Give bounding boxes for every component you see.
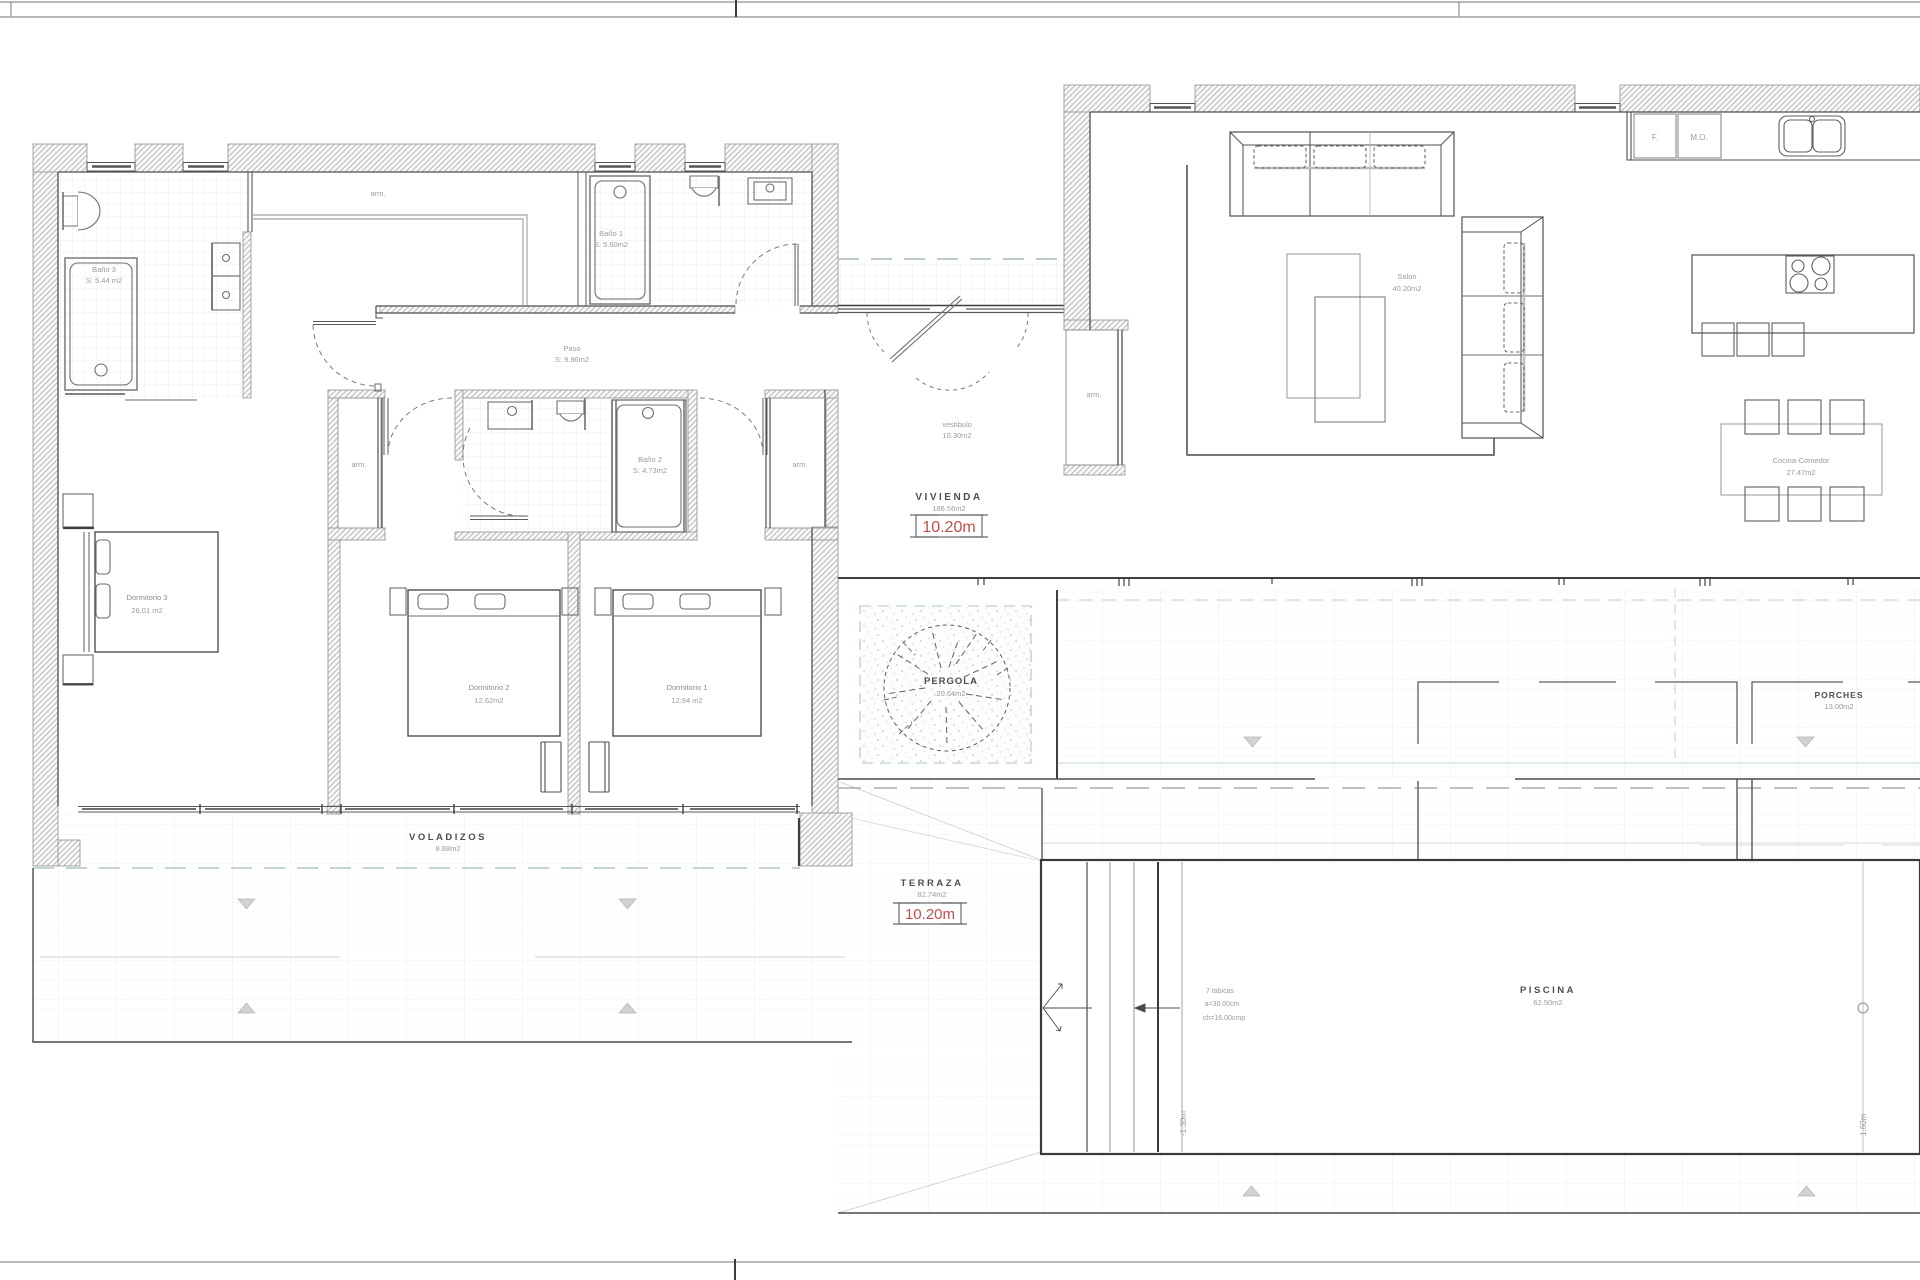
svg-text:Salon: Salon <box>1397 272 1416 281</box>
svg-text:27.47m2: 27.47m2 <box>1786 468 1815 477</box>
svg-text:7 tabicas: 7 tabicas <box>1206 988 1235 995</box>
svg-text:S: 5.44 m2: S: 5.44 m2 <box>86 276 122 285</box>
svg-text:arm.: arm. <box>371 189 386 198</box>
svg-text:M.O.: M.O. <box>1690 133 1707 142</box>
svg-text:Dormitorio 1: Dormitorio 1 <box>667 683 708 692</box>
svg-text:Baño 3: Baño 3 <box>92 265 116 274</box>
svg-text:40.20m2: 40.20m2 <box>1392 284 1421 293</box>
svg-text:8.88m2: 8.88m2 <box>435 844 460 853</box>
svg-text:20.64m2: 20.64m2 <box>936 689 965 698</box>
svg-text:PERGOLA: PERGOLA <box>924 676 978 687</box>
svg-text:Baño 1: Baño 1 <box>599 229 623 238</box>
svg-text:S: 4.73m2: S: 4.73m2 <box>633 466 667 475</box>
svg-text:VOLADIZOS: VOLADIZOS <box>409 832 487 843</box>
svg-text:12.62m2: 12.62m2 <box>474 696 503 705</box>
svg-text:62.50m2: 62.50m2 <box>1533 998 1562 1007</box>
svg-text:26.01 m2: 26.01 m2 <box>131 606 162 615</box>
svg-text:S: 9.96m2: S: 9.96m2 <box>555 355 589 364</box>
svg-text:10.20m: 10.20m <box>922 519 975 536</box>
svg-text:Cocina-Comedor: Cocina-Comedor <box>1773 456 1830 465</box>
svg-text:F.: F. <box>1652 133 1658 142</box>
svg-text:Paso: Paso <box>563 344 580 353</box>
svg-text:12.94 m2: 12.94 m2 <box>671 696 702 705</box>
svg-text:1.60m: 1.60m <box>1859 1113 1868 1136</box>
svg-text:-1.30m: -1.30m <box>1179 1111 1188 1136</box>
svg-text:Dormitorio 3: Dormitorio 3 <box>127 593 168 602</box>
svg-text:a=30.00cm: a=30.00cm <box>1205 1001 1240 1008</box>
svg-text:PORCHES: PORCHES <box>1814 690 1863 700</box>
svg-text:arm.: arm. <box>352 460 367 469</box>
svg-text:TERRAZA: TERRAZA <box>901 878 964 889</box>
svg-text:vestibulo: vestibulo <box>942 420 972 429</box>
svg-text:Dormitorio 2: Dormitorio 2 <box>469 683 510 692</box>
svg-text:arm.: arm. <box>793 460 808 469</box>
svg-text:ch=16.00cmp: ch=16.00cmp <box>1203 1015 1245 1022</box>
svg-text:13.00m2: 13.00m2 <box>1824 702 1853 711</box>
svg-text:10.30m2: 10.30m2 <box>942 431 971 440</box>
svg-text:VIVIENDA: VIVIENDA <box>915 492 982 503</box>
svg-text:PISCINA: PISCINA <box>1520 985 1576 996</box>
svg-text:82.74m2: 82.74m2 <box>917 890 946 899</box>
svg-text:S: 5.60m2: S: 5.60m2 <box>594 240 628 249</box>
svg-text:arm.: arm. <box>1087 390 1102 399</box>
svg-text:10.20m: 10.20m <box>905 906 955 923</box>
svg-text:186.56m2: 186.56m2 <box>932 504 965 513</box>
svg-text:Baño 2: Baño 2 <box>638 455 662 464</box>
